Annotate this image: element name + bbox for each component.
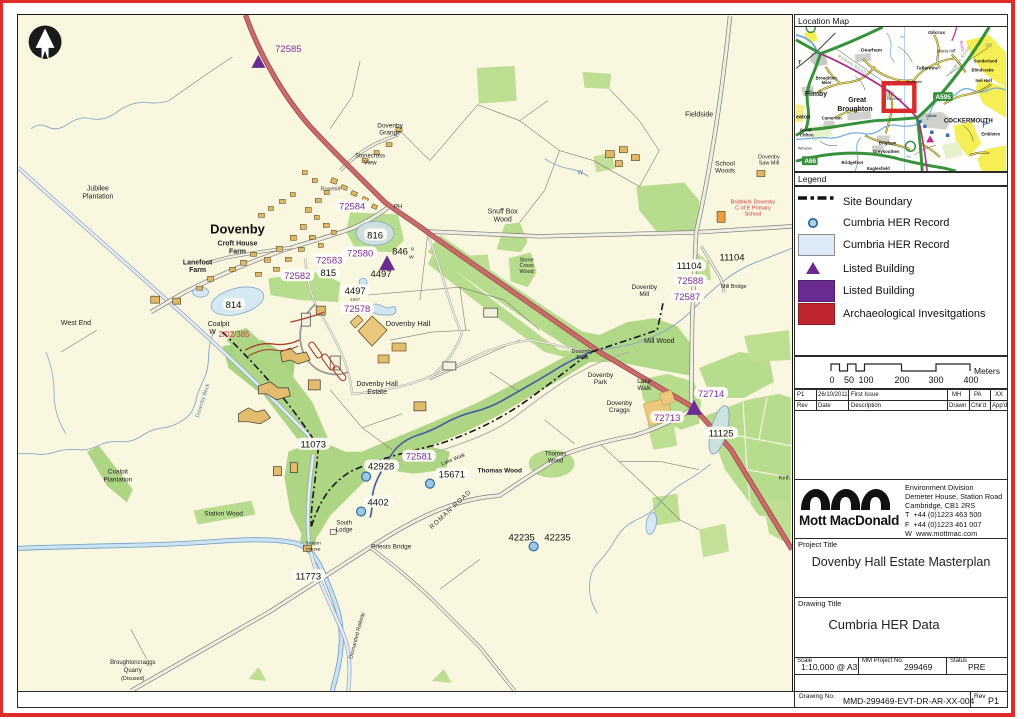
svg-text:Rosehill: Rosehill <box>320 186 339 192</box>
svg-text:Greysouthen: Greysouthen <box>873 149 900 154</box>
svg-text:Dovenby: Dovenby <box>210 221 265 236</box>
svg-text:11125: 11125 <box>709 429 734 440</box>
svg-text:Dovenby: Dovenby <box>377 123 403 130</box>
svg-text:72581: 72581 <box>406 452 432 463</box>
svg-text:Plantation: Plantation <box>82 193 113 200</box>
svg-text:Snuff Box: Snuff Box <box>488 208 519 215</box>
svg-text:Mill Bridge: Mill Bridge <box>721 284 747 290</box>
svg-text:72585: 72585 <box>275 44 301 55</box>
svg-text:Dovenby Hall: Dovenby Hall <box>356 381 398 388</box>
svg-text:11104: 11104 <box>677 261 702 272</box>
svg-text:School: School <box>745 211 762 217</box>
svg-text:Saw Mill: Saw Mill <box>759 161 779 167</box>
svg-text:Embleton: Embleton <box>981 131 1000 136</box>
svg-text:House: House <box>306 546 321 552</box>
svg-text:Lodge: Lodge <box>336 527 353 533</box>
svg-text:11773: 11773 <box>295 571 321 582</box>
svg-text:Dovenby Hall: Dovenby Hall <box>386 319 431 328</box>
svg-text:100: 100 <box>858 375 873 385</box>
svg-text:4697: 4697 <box>350 297 360 302</box>
svg-text:Wood: Wood <box>520 269 534 275</box>
svg-text:Isel Hall: Isel Hall <box>975 78 991 83</box>
svg-text:South: South <box>336 520 352 526</box>
svg-text:Coalpit: Coalpit <box>208 321 230 328</box>
svg-text:Lanefoot: Lanefoot <box>183 259 213 266</box>
svg-text:Flimby: Flimby <box>805 91 827 98</box>
svg-text:42928: 42928 <box>368 462 394 473</box>
svg-text:W: W <box>209 329 216 336</box>
svg-text:Thomas Wood: Thomas Wood <box>477 468 521 475</box>
svg-text:Sunderland: Sunderland <box>973 59 997 64</box>
svg-text:Quarry: Quarry <box>124 668 142 674</box>
svg-text:42235: 42235 <box>544 532 570 543</box>
svg-text:Thomas: Thomas <box>545 452 567 458</box>
svg-text:View: View <box>364 161 378 167</box>
svg-text:Lake: Lake <box>637 378 651 385</box>
svg-text:400: 400 <box>963 375 978 385</box>
svg-text:Mill: Mill <box>639 291 649 298</box>
svg-text:72580: 72580 <box>347 248 373 259</box>
svg-text:PH: PH <box>394 204 402 210</box>
svg-text:4497: 4497 <box>345 286 366 297</box>
svg-text:Woods: Woods <box>715 168 735 175</box>
svg-text:Kelh: Kelh <box>779 476 790 482</box>
svg-text:Plantation: Plantation <box>103 477 132 484</box>
svg-text:eaton: eaton <box>796 115 810 121</box>
svg-text:200: 200 <box>894 375 909 385</box>
svg-text:Broughton: Broughton <box>837 106 872 113</box>
svg-text:72714: 72714 <box>698 389 724 400</box>
svg-text:2/02/385: 2/02/385 <box>219 330 251 339</box>
svg-text:50: 50 <box>844 375 854 385</box>
svg-text:Park: Park <box>594 379 608 386</box>
svg-text:15671: 15671 <box>439 470 465 481</box>
svg-text:W: W <box>577 171 583 177</box>
svg-text:Dovenby: Dovenby <box>588 372 614 379</box>
svg-text:Fieldside: Fieldside <box>685 112 713 119</box>
svg-text:Clifton: Clifton <box>800 132 814 137</box>
svg-text:A66: A66 <box>804 158 816 165</box>
svg-text:72587: 72587 <box>674 292 700 303</box>
svg-text:94: 94 <box>906 155 910 159</box>
svg-text:72583: 72583 <box>316 255 342 266</box>
svg-text:9: 9 <box>411 246 414 252</box>
svg-text:School: School <box>715 161 735 168</box>
svg-text:816: 816 <box>367 230 383 241</box>
svg-text:64: 64 <box>901 35 905 39</box>
svg-text:72578: 72578 <box>344 304 370 315</box>
svg-text:814: 814 <box>226 300 242 311</box>
svg-text:Mill Wood: Mill Wood <box>644 338 675 345</box>
svg-text:Meters: Meters <box>974 366 1000 376</box>
svg-text:T: T <box>798 60 802 66</box>
svg-text:0: 0 <box>829 375 834 385</box>
svg-text:72584: 72584 <box>339 201 365 212</box>
svg-text:Wood: Wood <box>548 459 563 465</box>
svg-text:W: W <box>409 254 414 260</box>
svg-text:West End: West End <box>61 320 91 327</box>
svg-text:72582: 72582 <box>284 271 310 282</box>
svg-text:Dovenby: Dovenby <box>607 400 633 407</box>
svg-text:Grange: Grange <box>379 130 401 137</box>
svg-text:Eaglesfield: Eaglesfield <box>867 166 890 171</box>
svg-text:Redmain: Redmain <box>906 79 922 84</box>
svg-text:Tallentire: Tallentire <box>916 65 938 71</box>
svg-text:Priests Bridge: Priests Bridge <box>371 543 412 550</box>
svg-text:Dovenby: Dovenby <box>887 96 903 101</box>
svg-text:11104: 11104 <box>720 252 745 263</box>
svg-text:42235: 42235 <box>508 532 534 543</box>
svg-text:Dearham: Dearham <box>861 48 883 54</box>
svg-text:72588: 72588 <box>677 276 703 287</box>
svg-text:Farm: Farm <box>189 267 206 274</box>
svg-text:Croft House: Croft House <box>218 240 258 247</box>
svg-text:4402: 4402 <box>368 498 389 509</box>
svg-text:Great: Great <box>848 97 867 104</box>
svg-text:815: 815 <box>320 268 336 279</box>
svg-text:Camerton: Camerton <box>822 116 843 121</box>
svg-text:Blindcrake: Blindcrake <box>972 67 995 72</box>
svg-text:Station Wood: Station Wood <box>204 511 243 518</box>
svg-text:300: 300 <box>928 375 943 385</box>
svg-text:Bridgefoot: Bridgefoot <box>841 160 863 165</box>
svg-text:Broughtoncraggs: Broughtoncraggs <box>110 660 155 666</box>
svg-text:Beck: Beck <box>576 355 588 361</box>
svg-text:Coalpit: Coalpit <box>108 469 128 476</box>
svg-text:4497: 4497 <box>371 269 392 280</box>
svg-text:Moor: Moor <box>822 80 832 85</box>
svg-text:Winsow: Winsow <box>798 145 812 150</box>
svg-text:A595: A595 <box>936 94 952 101</box>
svg-text:Craggs: Craggs <box>609 407 630 414</box>
svg-text:Jubilee: Jubilee <box>87 185 109 192</box>
svg-text:Gilcrux: Gilcrux <box>928 30 945 36</box>
svg-text:Brigham: Brigham <box>879 140 897 145</box>
svg-text:Dovenby: Dovenby <box>632 284 658 291</box>
svg-text:11073: 11073 <box>300 440 326 451</box>
svg-text:72713: 72713 <box>654 413 680 424</box>
svg-text:(Disused): (Disused) <box>121 676 145 682</box>
svg-text:Marta Hill: Marta Hill <box>937 49 956 54</box>
svg-text:Castle: Castle <box>926 114 937 118</box>
svg-text:Walk: Walk <box>637 385 652 392</box>
svg-text:Stonecross: Stonecross <box>355 154 385 160</box>
svg-text:Farm: Farm <box>229 248 246 255</box>
svg-text:Estate: Estate <box>367 389 387 396</box>
svg-text:COCKERMOUTH: COCKERMOUTH <box>944 118 993 125</box>
svg-text:200: 200 <box>985 43 993 48</box>
svg-text:846: 846 <box>392 246 408 257</box>
svg-text:Wood: Wood <box>494 216 512 223</box>
